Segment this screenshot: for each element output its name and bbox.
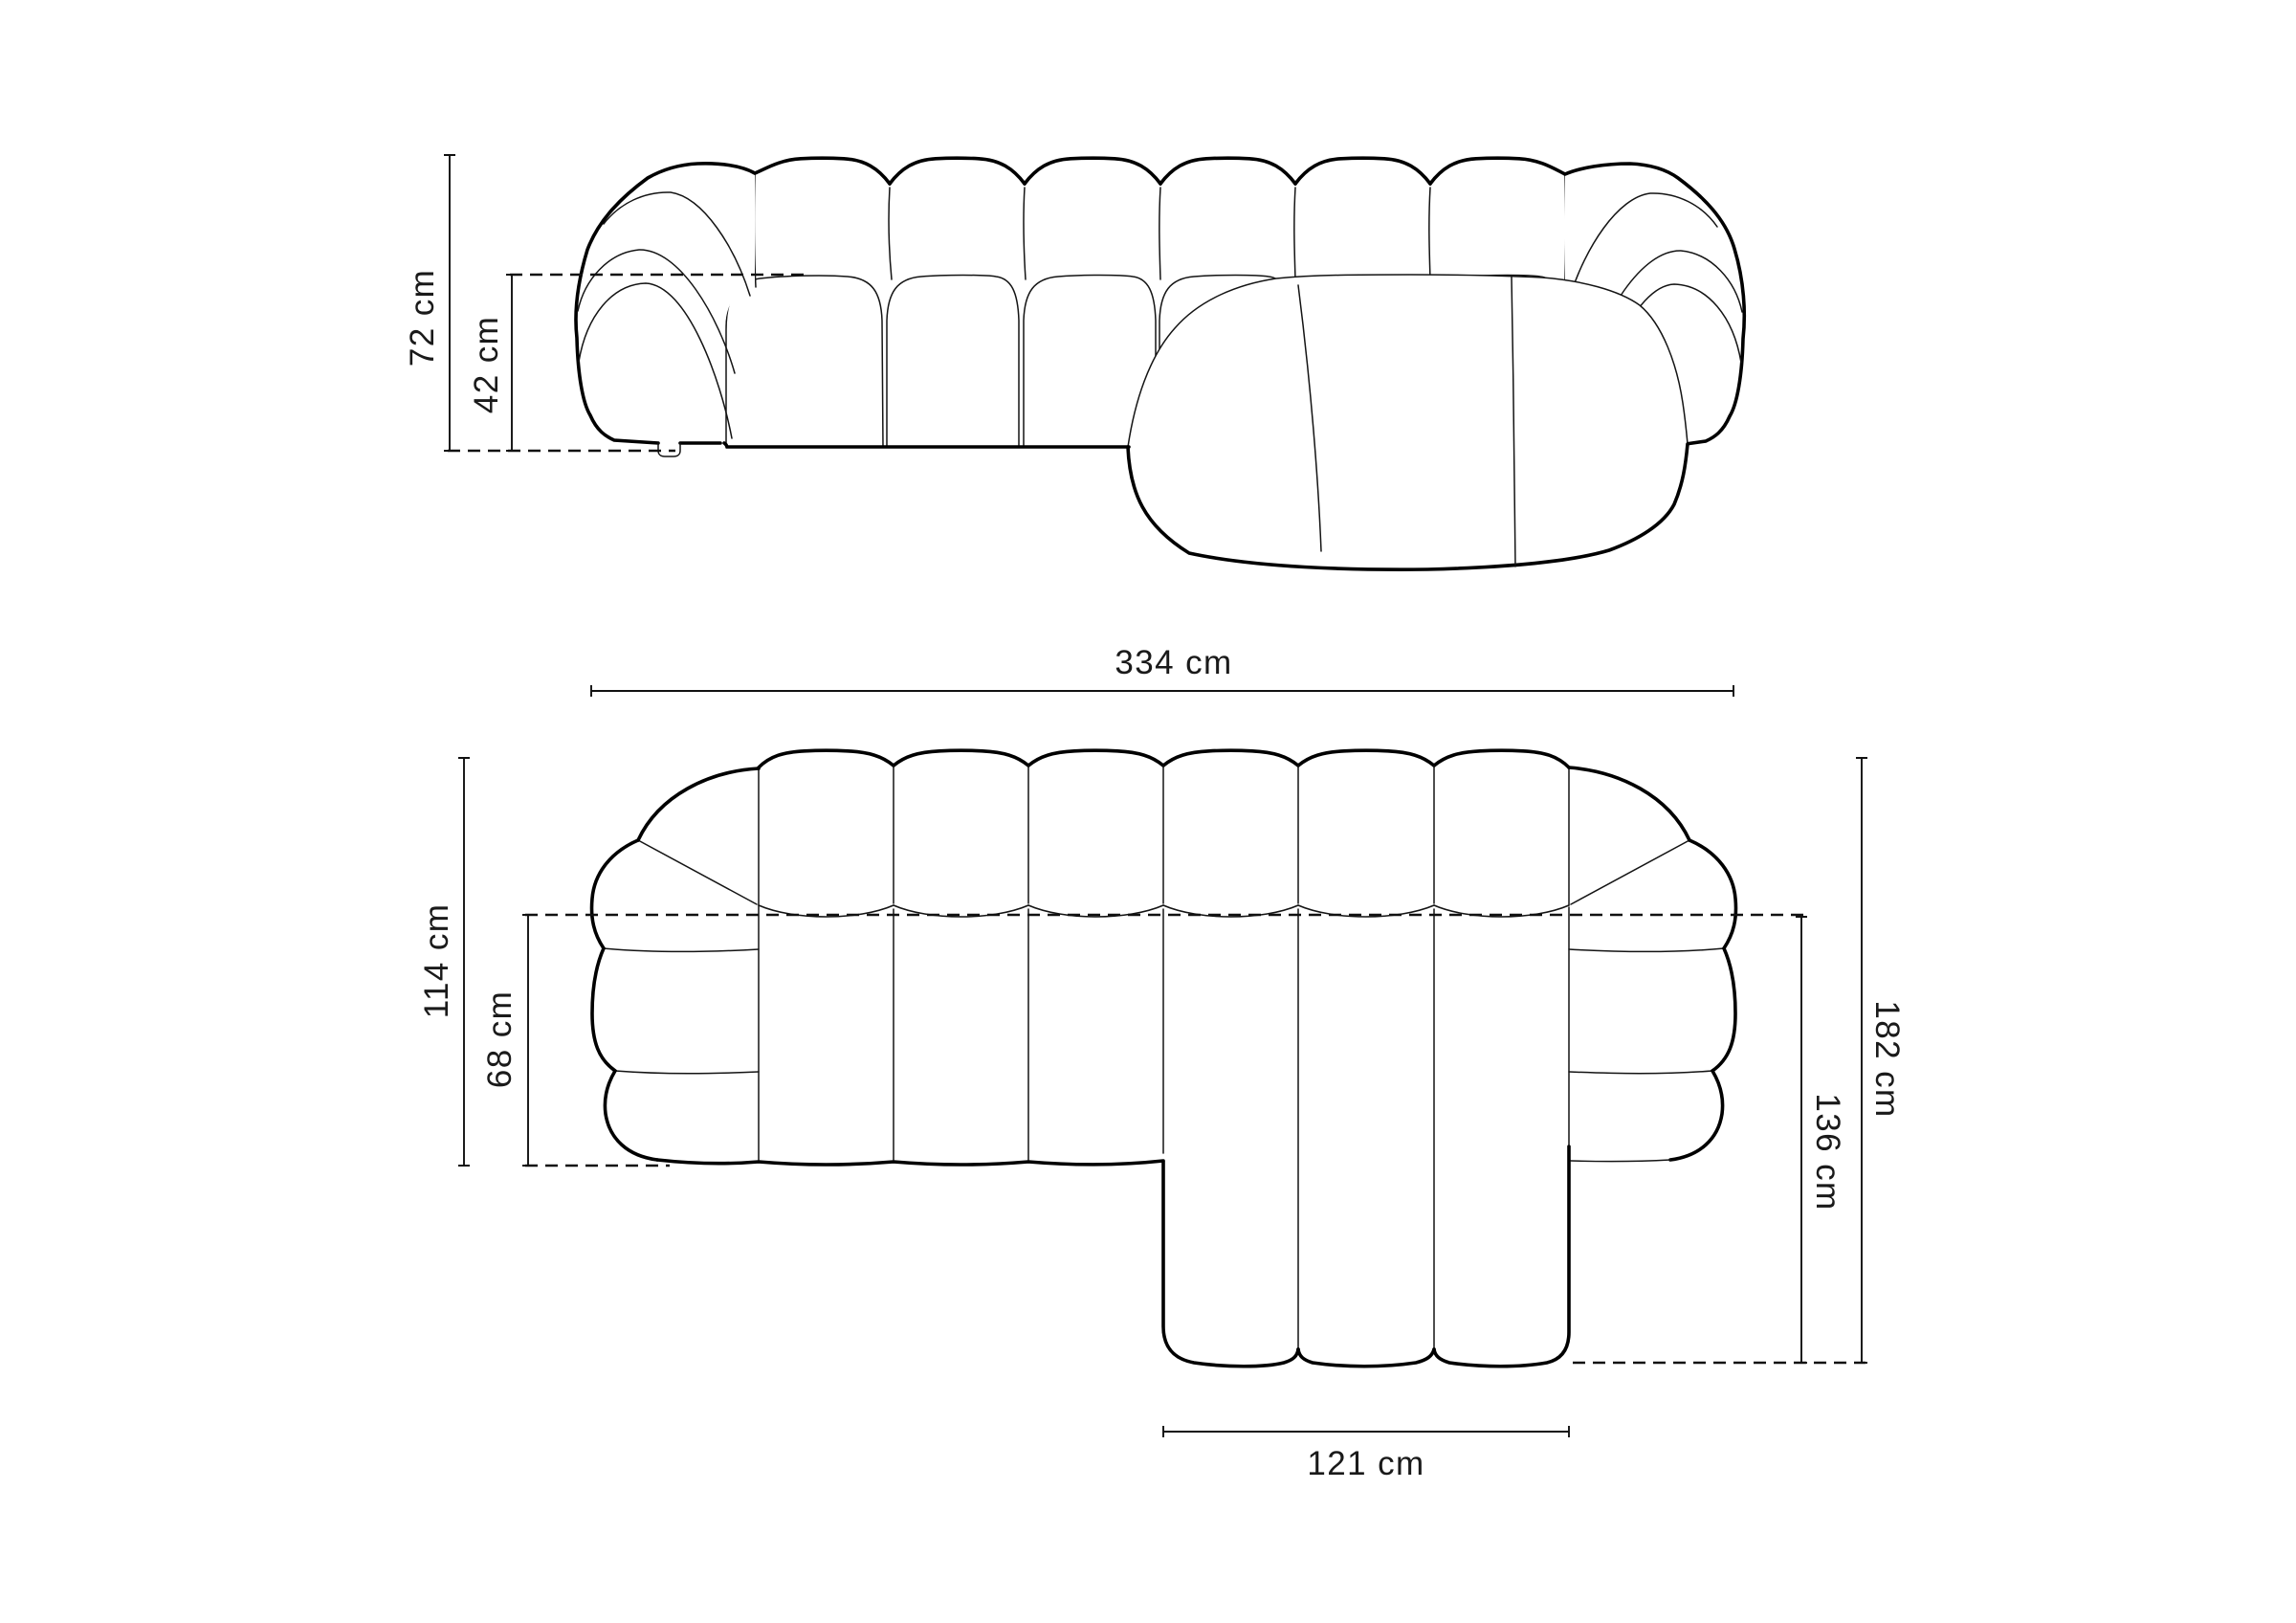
svg-text:42 cm: 42 cm	[468, 316, 505, 413]
svg-text:68 cm: 68 cm	[481, 990, 519, 1088]
svg-text:182 cm: 182 cm	[1868, 1000, 1906, 1118]
svg-text:136 cm: 136 cm	[1809, 1093, 1846, 1211]
svg-text:121 cm: 121 cm	[1307, 1445, 1424, 1482]
svg-text:72 cm: 72 cm	[404, 269, 441, 367]
svg-text:334 cm: 334 cm	[1115, 644, 1232, 681]
svg-text:114 cm: 114 cm	[418, 903, 455, 1019]
